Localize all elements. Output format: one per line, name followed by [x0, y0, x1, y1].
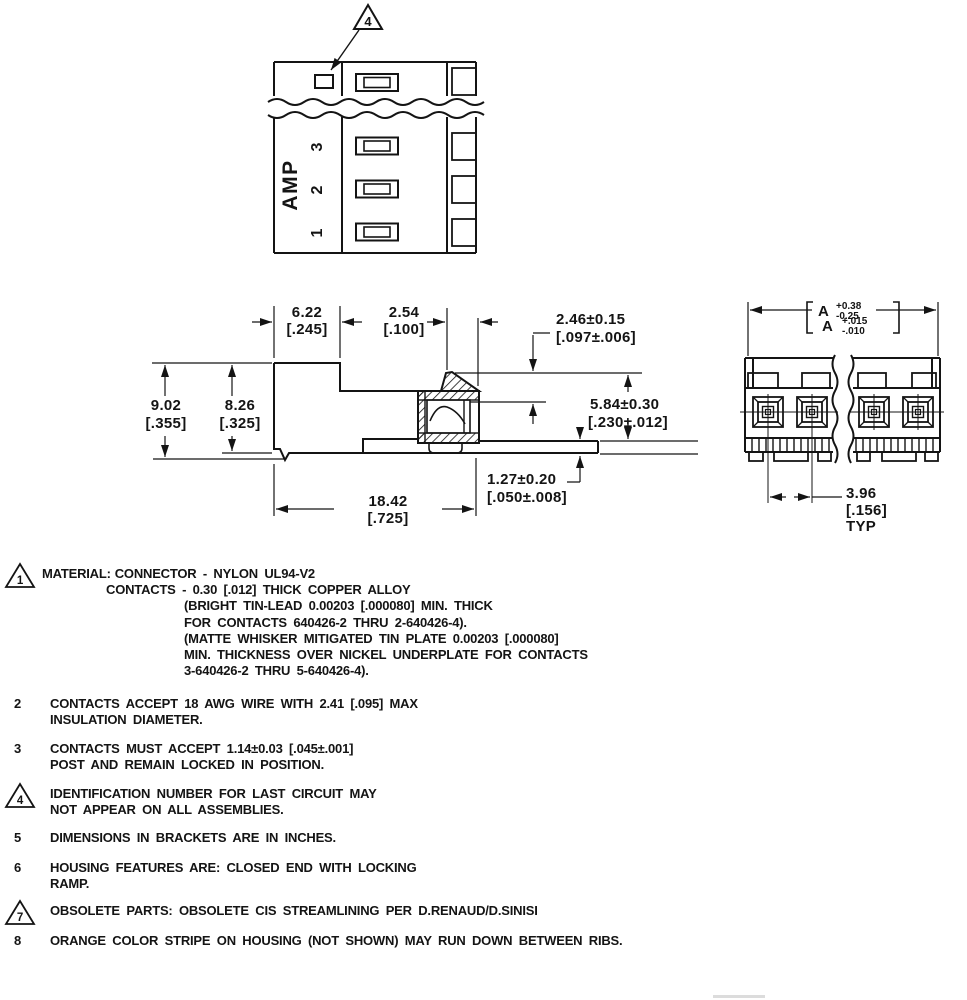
- note-4-text: IDENTIFICATION NUMBER FOR LAST CIRCUIT M…: [50, 786, 377, 818]
- note-2-text: CONTACTS ACCEPT 18 AWG WIRE WITH 2.41 [.…: [50, 696, 418, 728]
- bottom-edge-artifact: [713, 995, 765, 998]
- note-4-number: 4: [17, 795, 24, 807]
- note-6-text: HOUSING FEATURES ARE: CLOSED END WITH LO…: [50, 860, 417, 892]
- note-5-text: DIMENSIONS IN BRACKETS ARE IN INCHES.: [50, 830, 336, 846]
- note-7-text: OBSOLETE PARTS: OBSOLETE CIS STREAMLININ…: [50, 903, 538, 919]
- note-2-number: 2: [14, 696, 21, 712]
- note-6-number: 6: [14, 860, 21, 876]
- note-8-number: 8: [14, 933, 21, 949]
- notes-section: 1 MATERIAL:CONNECTOR - NYLON UL94-V2 CON…: [0, 0, 967, 1000]
- note-3-number: 3: [14, 741, 21, 757]
- note-1-number: 1: [17, 575, 24, 587]
- note-3-text: CONTACTS MUST ACCEPT 1.14±0.03 [.045±.00…: [50, 741, 353, 773]
- note-8-text: ORANGE COLOR STRIPE ON HOUSING (NOT SHOW…: [50, 933, 622, 949]
- note-1-text: MATERIAL:CONNECTOR - NYLON UL94-V2 CONTA…: [42, 566, 588, 679]
- note-5-number: 5: [14, 830, 21, 846]
- drawing-sheet: 4 AMP 3 2 1: [0, 0, 967, 1000]
- note-7-number: 7: [17, 912, 23, 924]
- note-1-label: MATERIAL:: [42, 566, 111, 582]
